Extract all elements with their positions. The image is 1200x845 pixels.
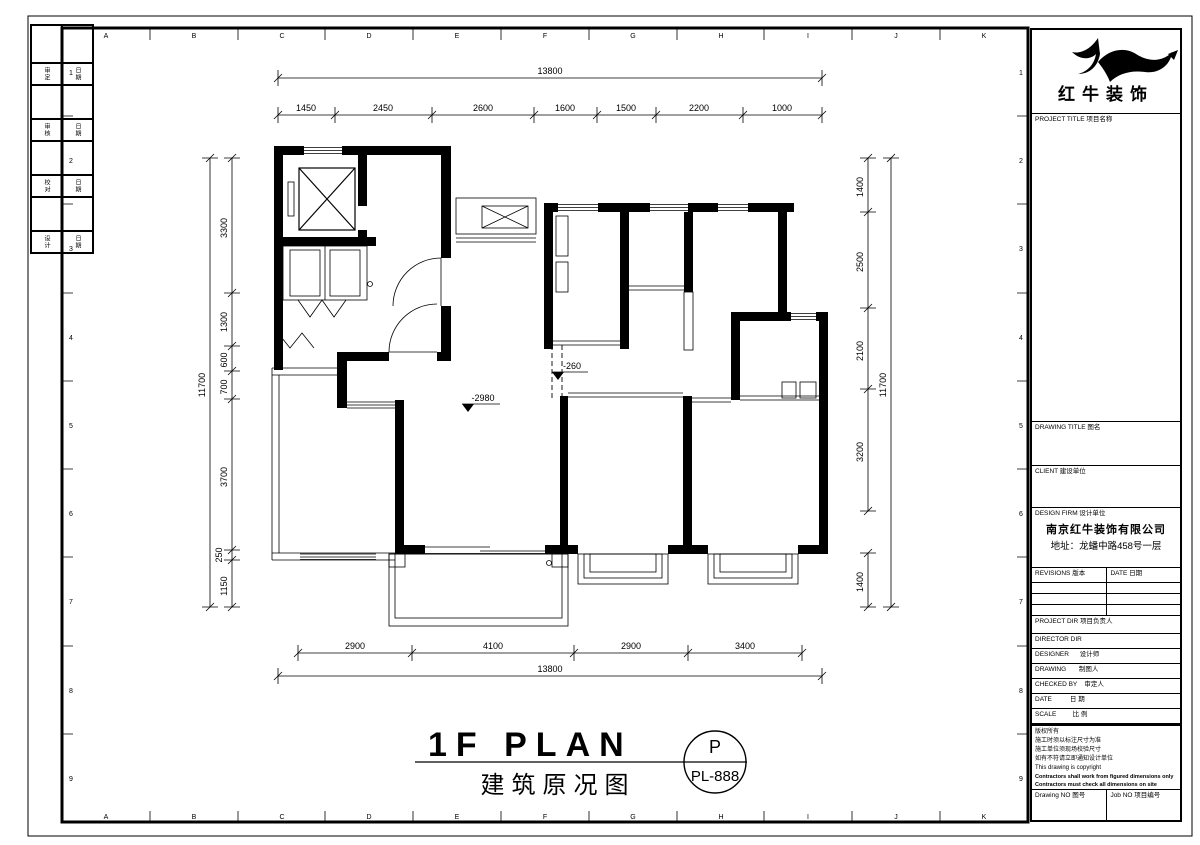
- garden-room: [272, 368, 395, 560]
- drawing-title-area: 1F PLAN 建筑原况图 P PL-888: [415, 726, 747, 799]
- svg-text:PL-888: PL-888: [691, 768, 739, 785]
- sub-title: 建筑原况图: [481, 772, 636, 799]
- strip-label: 审定: [31, 63, 62, 85]
- svg-text:B: B: [192, 814, 197, 821]
- svg-text:2450: 2450: [373, 103, 393, 113]
- svg-text:2600: 2600: [473, 103, 493, 113]
- svg-text:1000: 1000: [772, 103, 792, 113]
- strip-label: 设计: [31, 231, 62, 253]
- svg-text:3300: 3300: [219, 218, 229, 238]
- strip-label: 日期: [62, 231, 93, 253]
- svg-text:2900: 2900: [621, 641, 641, 651]
- revisions-header: REVISIONS 版本 DATE 日期: [1032, 568, 1180, 583]
- svg-text:J: J: [894, 814, 898, 821]
- elevation-mark-hall: -260: [552, 361, 588, 380]
- svg-text:4: 4: [1019, 335, 1023, 342]
- strip-label: 日期: [62, 63, 93, 85]
- svg-text:I: I: [807, 33, 809, 40]
- svg-text:H: H: [718, 33, 723, 40]
- svg-text:I: I: [807, 814, 809, 821]
- duct-unit: [456, 198, 536, 242]
- svg-text:1400: 1400: [855, 572, 865, 592]
- break-line: [278, 333, 314, 348]
- svg-text:-2980: -2980: [471, 393, 494, 403]
- strip-label: 校对: [31, 175, 62, 197]
- svg-text:1300: 1300: [219, 312, 229, 332]
- svg-text:4100: 4100: [483, 641, 503, 651]
- svg-text:1: 1: [1019, 70, 1023, 77]
- svg-text:G: G: [630, 33, 635, 40]
- cad-canvas: A B C D E F G H I J K A B C D E F G H I …: [0, 0, 1200, 845]
- design-firm-name: 南京红牛装饰有限公司: [1035, 524, 1177, 538]
- svg-text:2100: 2100: [855, 341, 865, 361]
- svg-text:3: 3: [1019, 246, 1023, 253]
- stair-core: [283, 246, 373, 317]
- svg-text:C: C: [279, 814, 284, 821]
- svg-text:11700: 11700: [878, 373, 888, 397]
- svg-text:7: 7: [69, 599, 73, 606]
- revision-row: [1032, 583, 1180, 594]
- svg-text:2900: 2900: [345, 641, 365, 651]
- svg-text:F: F: [543, 33, 547, 40]
- svg-text:E: E: [455, 814, 460, 821]
- drawing-sheet: A B C D E F G H I J K A B C D E F G H I …: [0, 0, 1200, 845]
- svg-text:K: K: [982, 33, 987, 40]
- designer-row: DESIGNER 设计师: [1032, 649, 1180, 664]
- svg-text:1150: 1150: [219, 576, 229, 595]
- bay-window-right: [708, 554, 798, 584]
- floor-plan: -2980 -260: [272, 146, 828, 626]
- checked-row: CHECKED BY 审定人: [1032, 679, 1180, 694]
- svg-text:2500: 2500: [855, 252, 865, 272]
- company-name: 红牛装饰: [1035, 84, 1177, 105]
- svg-text:250: 250: [214, 547, 224, 562]
- main-title: 1F PLAN: [428, 726, 633, 764]
- svg-text:13800: 13800: [537, 664, 562, 674]
- strip-label: 审核: [31, 119, 62, 141]
- project-dir-row: PROJECT DIR 项目负责人: [1032, 616, 1180, 634]
- door-swings: [389, 258, 441, 352]
- drawing-row: DRAWING 制图人: [1032, 664, 1180, 679]
- svg-text:D: D: [366, 814, 371, 821]
- project-title-box: PROJECT TITLE 项目名称: [1032, 114, 1180, 422]
- logo-box: 红牛装饰: [1032, 30, 1180, 114]
- svg-text:3200: 3200: [855, 442, 865, 462]
- svg-text:9: 9: [1019, 776, 1023, 783]
- bay-window-left: [578, 554, 668, 584]
- dimension-right: 1400 2500 2100 3200 1400 11700: [855, 154, 899, 611]
- svg-text:B: B: [192, 33, 197, 40]
- balcony: [389, 554, 568, 626]
- dimension-top: 13800 1450 2450 2600 1600 1500 2200 1000: [274, 66, 826, 123]
- svg-text:2200: 2200: [689, 103, 709, 113]
- svg-text:1500: 1500: [616, 103, 636, 113]
- design-firm-box: DESIGN FIRM 设计单位 南京红牛装饰有限公司 地址：龙蟠中路458号一…: [1032, 508, 1180, 568]
- grid-numbers-right: 1 2 3 4 5 6 7 8 9: [1017, 70, 1028, 783]
- client-box: CLIENT 建设单位: [1032, 466, 1180, 508]
- svg-text:G: G: [630, 814, 635, 821]
- title-block: 红牛装饰 PROJECT TITLE 项目名称 DRAWING TITLE 图名…: [1030, 28, 1182, 822]
- svg-text:1600: 1600: [555, 103, 575, 113]
- signature-strip: 审定 日期 审核 日期 校对 日期 设计 日期: [30, 24, 94, 254]
- grid-letters-bottom: A B C D E F G H I J K: [104, 811, 987, 822]
- svg-text:C: C: [279, 33, 284, 40]
- svg-text:1450: 1450: [296, 103, 316, 113]
- svg-text:4: 4: [69, 335, 73, 342]
- dimension-left: 11700 3300 1300 600 700 3700 250 1150: [197, 154, 240, 611]
- grid-letters-top: A B C D E F G H I J K: [104, 29, 987, 40]
- strip-label: 日期: [62, 175, 93, 197]
- svg-text:E: E: [455, 33, 460, 40]
- drawing-title-box: DRAWING TITLE 图名: [1032, 422, 1180, 466]
- svg-text:P: P: [709, 737, 721, 757]
- svg-text:8: 8: [1019, 688, 1023, 695]
- svg-text:3400: 3400: [735, 641, 755, 651]
- copyright-box: 版权所有 施工时须以标注尺寸为准 施工单位须现场校验尺寸 如有不符请立即通知设计…: [1032, 724, 1180, 790]
- svg-text:600: 600: [219, 352, 229, 367]
- design-firm-address: 地址：龙蟠中路458号一层: [1035, 541, 1177, 553]
- director-row: DIRECTOR DIR: [1032, 634, 1180, 649]
- svg-text:A: A: [104, 33, 109, 40]
- svg-text:H: H: [718, 814, 723, 821]
- dimension-bottom: 2900 4100 2900 3400 13800: [274, 641, 826, 684]
- svg-text:2: 2: [1019, 158, 1023, 165]
- elevator-shaft: [288, 168, 355, 230]
- svg-text:8: 8: [69, 688, 73, 695]
- elevation-mark-living: -2980: [462, 393, 500, 412]
- strip-label: 日期: [62, 119, 93, 141]
- svg-text:5: 5: [69, 423, 73, 430]
- svg-text:K: K: [982, 814, 987, 821]
- date-row: DATE 日 期: [1032, 694, 1180, 709]
- svg-text:6: 6: [69, 511, 73, 518]
- svg-text:D: D: [366, 33, 371, 40]
- svg-text:-260: -260: [563, 361, 581, 371]
- svg-text:J: J: [894, 33, 898, 40]
- svg-text:1400: 1400: [855, 177, 865, 197]
- svg-text:9: 9: [69, 776, 73, 783]
- sheet-frame: [28, 16, 1192, 836]
- revision-row: [1032, 594, 1180, 605]
- svg-text:3700: 3700: [219, 467, 229, 487]
- svg-text:5: 5: [1019, 423, 1023, 430]
- drawing-no-box: Drawing NO 图号 Job NO 项目编号: [1032, 790, 1180, 820]
- svg-text:6: 6: [1019, 511, 1023, 518]
- svg-text:A: A: [104, 814, 109, 821]
- svg-text:13800: 13800: [537, 66, 562, 76]
- svg-text:700: 700: [219, 379, 229, 394]
- svg-text:11700: 11700: [197, 373, 207, 397]
- svg-text:F: F: [543, 814, 547, 821]
- svg-text:7: 7: [1019, 599, 1023, 606]
- revision-row: [1032, 605, 1180, 616]
- scale-row: SCALE 比 例: [1032, 709, 1180, 724]
